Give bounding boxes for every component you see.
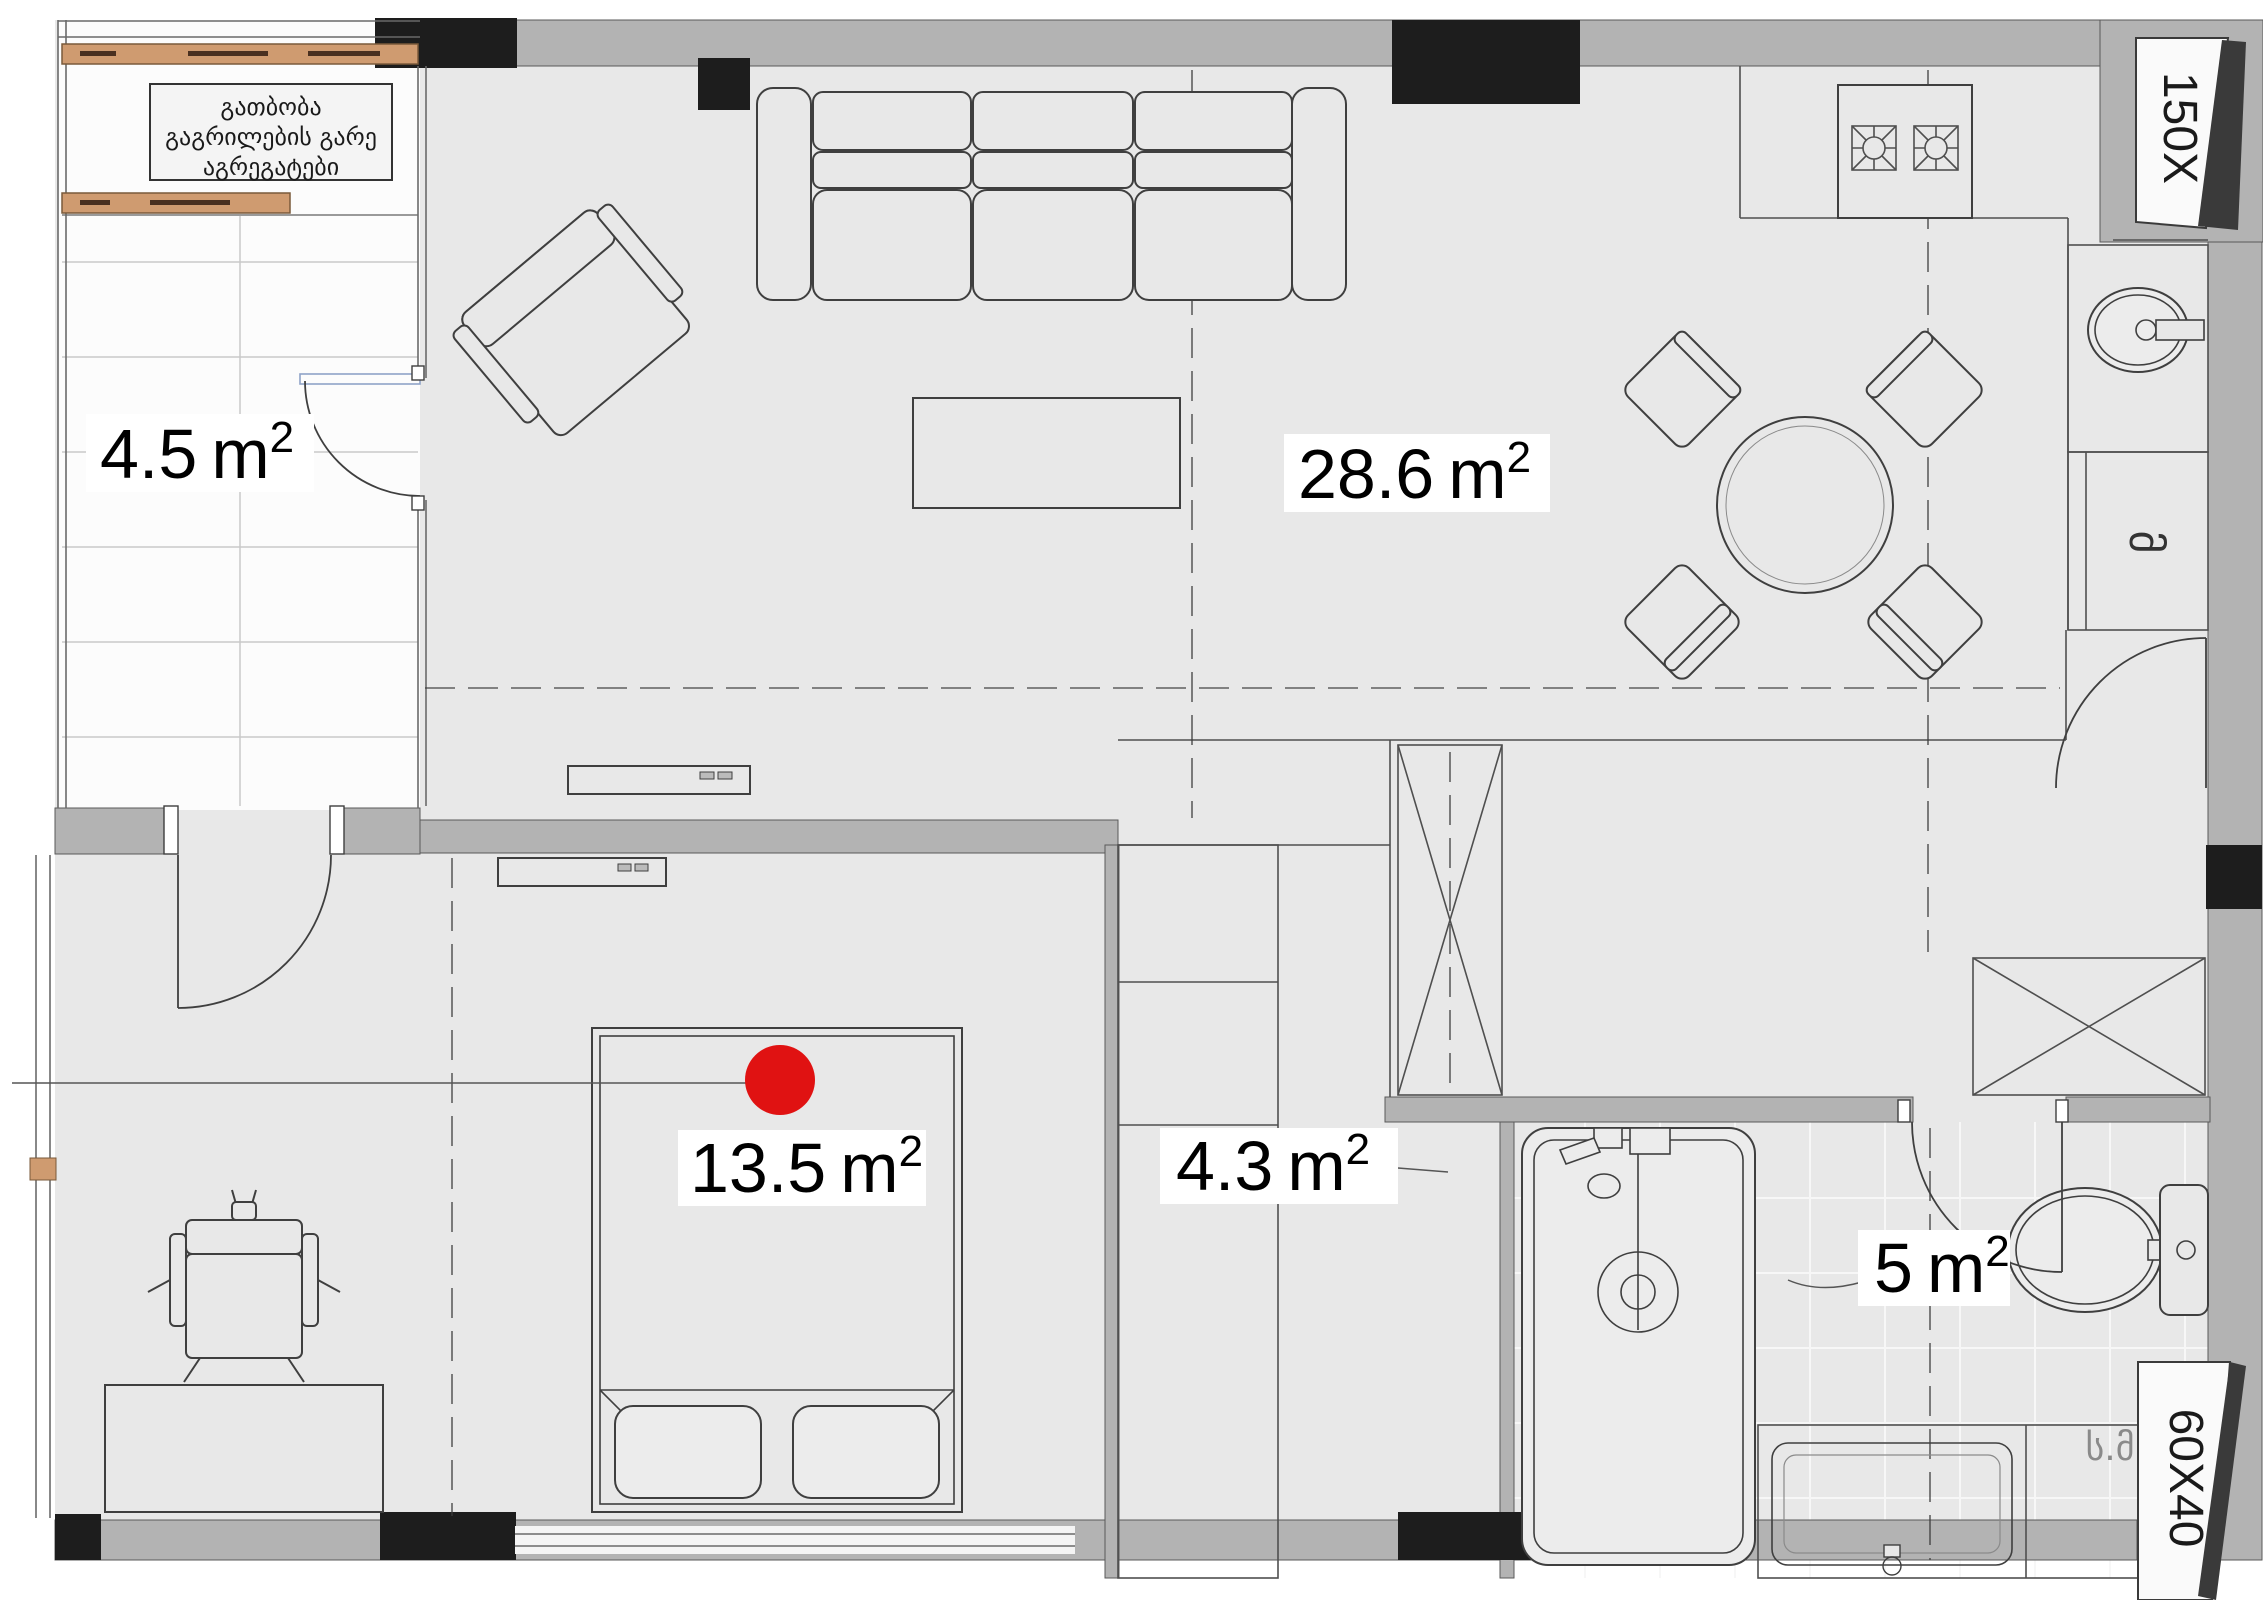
dining-table <box>1717 417 1893 593</box>
shaft-top-right-label: 150X <box>2153 72 2206 184</box>
note-line-3: აგრეგატები <box>203 153 339 181</box>
shaft-bottom-right-label: 60X40 <box>2159 1409 2212 1548</box>
bathroom-area-value: 5 <box>1874 1229 1913 1307</box>
closet-area-value: 4.3 <box>1176 1127 1273 1205</box>
bathroom-area-label: 5m2 <box>1858 1227 2010 1307</box>
column-bottom-1 <box>380 1512 516 1560</box>
coffee-table <box>913 398 1180 508</box>
stove <box>1838 85 1972 218</box>
svg-text:13.5m2: 13.5m2 <box>690 1127 923 1207</box>
desk <box>105 1385 383 1512</box>
column-top-2 <box>1392 20 1580 104</box>
svg-text:4.3m2: 4.3m2 <box>1176 1125 1370 1205</box>
shaft-marker-top-right: 150X <box>2136 38 2246 230</box>
sofa <box>757 88 1346 300</box>
wall-bathroom-west <box>1500 1122 1514 1578</box>
toilet <box>2008 1185 2208 1315</box>
wall-balcony-south-right <box>344 808 420 854</box>
bedroom-area-value: 13.5 <box>690 1129 826 1207</box>
wall-bottom <box>55 1520 2137 1560</box>
column-right-mid <box>2206 845 2262 909</box>
wall-bathroom-north-left <box>1385 1097 1913 1122</box>
note-line-2: გაგრილების გარე <box>165 123 377 151</box>
appliance-label: მ <box>2119 531 2170 554</box>
tv-console-living <box>568 766 750 794</box>
wall-bedroom-north <box>420 820 1118 853</box>
living-area-value: 28.6 <box>1298 435 1434 513</box>
bathtub <box>1522 1128 1755 1565</box>
hvac-note-box: გათბობა გაგრილების გარე აგრეგატები <box>150 84 392 181</box>
balcony-area-value: 4.5 <box>100 415 197 493</box>
closet-area-label: 4.3m2 <box>1160 1125 1398 1205</box>
location-marker-dot[interactable] <box>745 1045 815 1115</box>
wall-bathroom-north-right <box>2066 1097 2210 1122</box>
wall-balcony-south-left <box>55 808 168 854</box>
tv-console-bedroom <box>498 858 666 886</box>
column-sofa-left <box>698 58 750 110</box>
balcony-area-label: 4.5m2 <box>86 413 314 493</box>
column-bottom-left <box>55 1514 101 1560</box>
counter-label: ს.მ <box>2085 1428 2134 1469</box>
wall-top <box>418 20 2210 66</box>
bedroom-area-label: 13.5m2 <box>678 1127 926 1207</box>
apartment-floor-plan: მ <box>0 0 2263 1600</box>
living-area-label: 28.6m2 <box>1284 433 1550 513</box>
svg-text:28.6m2: 28.6m2 <box>1298 433 1531 513</box>
wall-bedroom-closet <box>1105 845 1119 1578</box>
floor-plan-page: მ <box>0 0 2263 1600</box>
svg-text:4.5m2: 4.5m2 <box>100 413 294 493</box>
note-line-1: გათბობა <box>220 93 321 121</box>
